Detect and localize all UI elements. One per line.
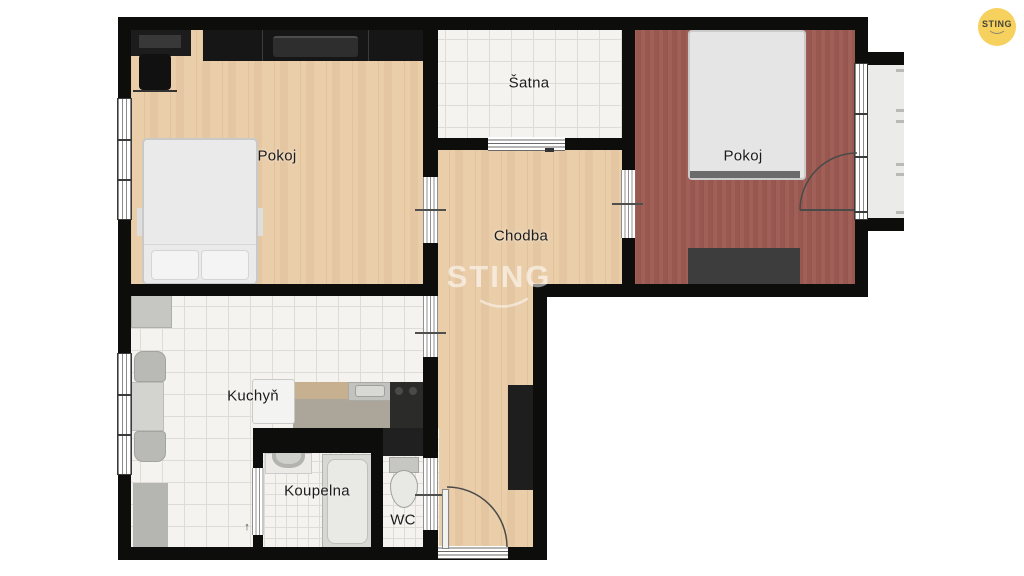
wall-chodba-bottom bbox=[533, 284, 868, 297]
window-kuchyn bbox=[117, 353, 132, 475]
door-kuchyn-chodba bbox=[423, 296, 438, 357]
door-direction-arrow: ↑ bbox=[244, 521, 250, 533]
wardrobe bbox=[203, 30, 423, 61]
entry-door-leaf bbox=[442, 489, 449, 549]
wc-shelf bbox=[383, 428, 425, 456]
room-label-satna: Šatna bbox=[509, 75, 550, 92]
bed-seam bbox=[144, 244, 256, 245]
floor-plan: Pokoj Šatna Chodba Pokoj Kuchyň Koupelna… bbox=[0, 0, 1024, 576]
sink-basin bbox=[355, 385, 385, 397]
tv bbox=[273, 36, 358, 57]
window-division bbox=[855, 113, 867, 115]
balcony bbox=[866, 64, 904, 220]
window-division bbox=[855, 211, 867, 213]
balcony-railing-tick bbox=[896, 69, 904, 72]
window-division bbox=[118, 139, 131, 141]
counter-front bbox=[293, 399, 390, 428]
door-tick bbox=[415, 209, 446, 211]
rug bbox=[688, 248, 800, 284]
room-label-pokoj1: Pokoj bbox=[257, 148, 296, 165]
bathtub bbox=[322, 454, 373, 549]
pillow bbox=[151, 250, 199, 280]
kitchen-cabinet bbox=[131, 292, 172, 328]
window-pokoj1 bbox=[117, 98, 132, 220]
balcony-railing-tick bbox=[896, 120, 904, 123]
wall-pokoj1-kuchyn bbox=[118, 284, 438, 296]
dining-chair bbox=[134, 431, 166, 462]
window-division bbox=[855, 156, 867, 158]
window-balcony-door bbox=[854, 63, 868, 220]
kitchen-cabinet-low bbox=[133, 483, 168, 547]
bed-pokoj1 bbox=[142, 138, 258, 285]
wall-top bbox=[118, 17, 868, 30]
stove bbox=[390, 382, 424, 428]
door-koupelna-kuchyn bbox=[252, 468, 264, 535]
wall-satna-pokoj2 bbox=[622, 17, 635, 297]
hall-wardrobe bbox=[508, 385, 533, 490]
room-label-chodba: Chodba bbox=[494, 228, 548, 245]
sting-logo: STING bbox=[978, 8, 1016, 46]
pillow bbox=[201, 250, 249, 280]
watermark-text: STING bbox=[447, 259, 552, 295]
wall-koupelna-wc bbox=[371, 428, 383, 548]
wall-corridor-right bbox=[533, 284, 547, 560]
wardrobe-divider bbox=[368, 30, 369, 61]
window-division bbox=[118, 179, 131, 181]
door-tick bbox=[415, 332, 446, 334]
counter-top bbox=[293, 382, 348, 399]
desk-chair bbox=[139, 54, 171, 90]
room-label-pokoj2: Pokoj bbox=[723, 148, 762, 165]
bathtub-inner bbox=[327, 459, 368, 544]
balcony-railing-tick bbox=[896, 109, 904, 112]
sting-logo-swoosh bbox=[989, 29, 1005, 35]
door-tick bbox=[612, 203, 643, 205]
desk-top bbox=[139, 35, 181, 48]
room-label-kuchyn: Kuchyň bbox=[227, 388, 279, 405]
room-label-koupelna: Koupelna bbox=[284, 483, 350, 500]
burner bbox=[409, 387, 417, 395]
burner bbox=[395, 387, 403, 395]
room-label-wc: WC bbox=[390, 512, 416, 529]
bed-footboard bbox=[690, 171, 800, 178]
dining-chair bbox=[134, 351, 166, 382]
window-division bbox=[118, 394, 131, 396]
balcony-railing-tick bbox=[896, 211, 904, 214]
desk bbox=[131, 30, 191, 56]
door-stop-mark bbox=[545, 148, 554, 152]
door-leaf-pokoj2 bbox=[800, 209, 857, 211]
window-division bbox=[118, 434, 131, 436]
wardrobe-divider bbox=[262, 30, 263, 61]
wall-koupelna-top bbox=[253, 428, 383, 453]
dining-table bbox=[129, 382, 164, 431]
kitchen-sink bbox=[348, 382, 392, 401]
balcony-railing-tick bbox=[896, 173, 904, 176]
sting-logo-text: STING bbox=[982, 19, 1012, 29]
desk-chair-base bbox=[133, 90, 177, 92]
balcony-railing-tick bbox=[896, 163, 904, 166]
